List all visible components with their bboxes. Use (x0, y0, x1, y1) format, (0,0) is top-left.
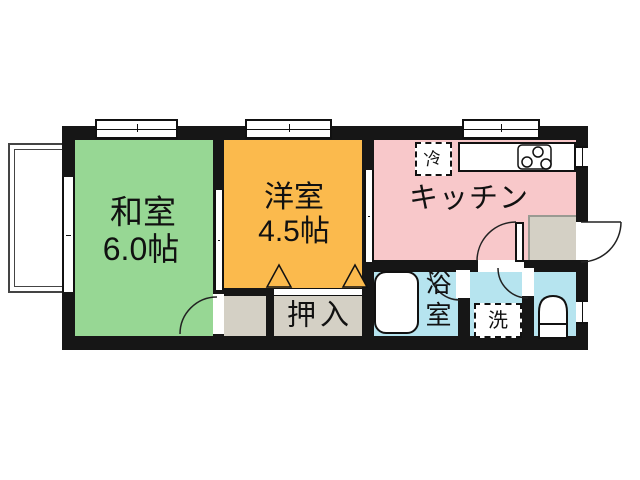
label-kitchen: キッチン (409, 185, 529, 214)
label-washer: 洗 (488, 311, 508, 331)
label-yoshitsu-area: 4.5帖 (258, 217, 330, 247)
label-bathroom: 浴室 (424, 269, 450, 333)
label-refrigerator: 冷 (423, 149, 444, 170)
fusuma-triangle-right (343, 265, 367, 287)
door-arc-toilet (498, 268, 528, 298)
door-arc-washitsu (180, 297, 217, 334)
floor-plan: 和室 6.0帖 洋室 4.5帖 キッチン 押入 浴室 洗 冷 (0, 0, 640, 480)
label-yoshitsu: 洋室 (264, 183, 324, 213)
fusuma-triangle-left (267, 265, 291, 287)
entrance-door-arc (581, 222, 621, 262)
toilet-icon (539, 296, 567, 338)
stove-icon (518, 145, 551, 169)
door-arc-kitchen (477, 222, 516, 261)
label-washitsu-area: 6.0帖 (103, 233, 180, 265)
label-washitsu: 和室 (110, 196, 176, 229)
label-oshiire: 押入 (287, 302, 353, 331)
